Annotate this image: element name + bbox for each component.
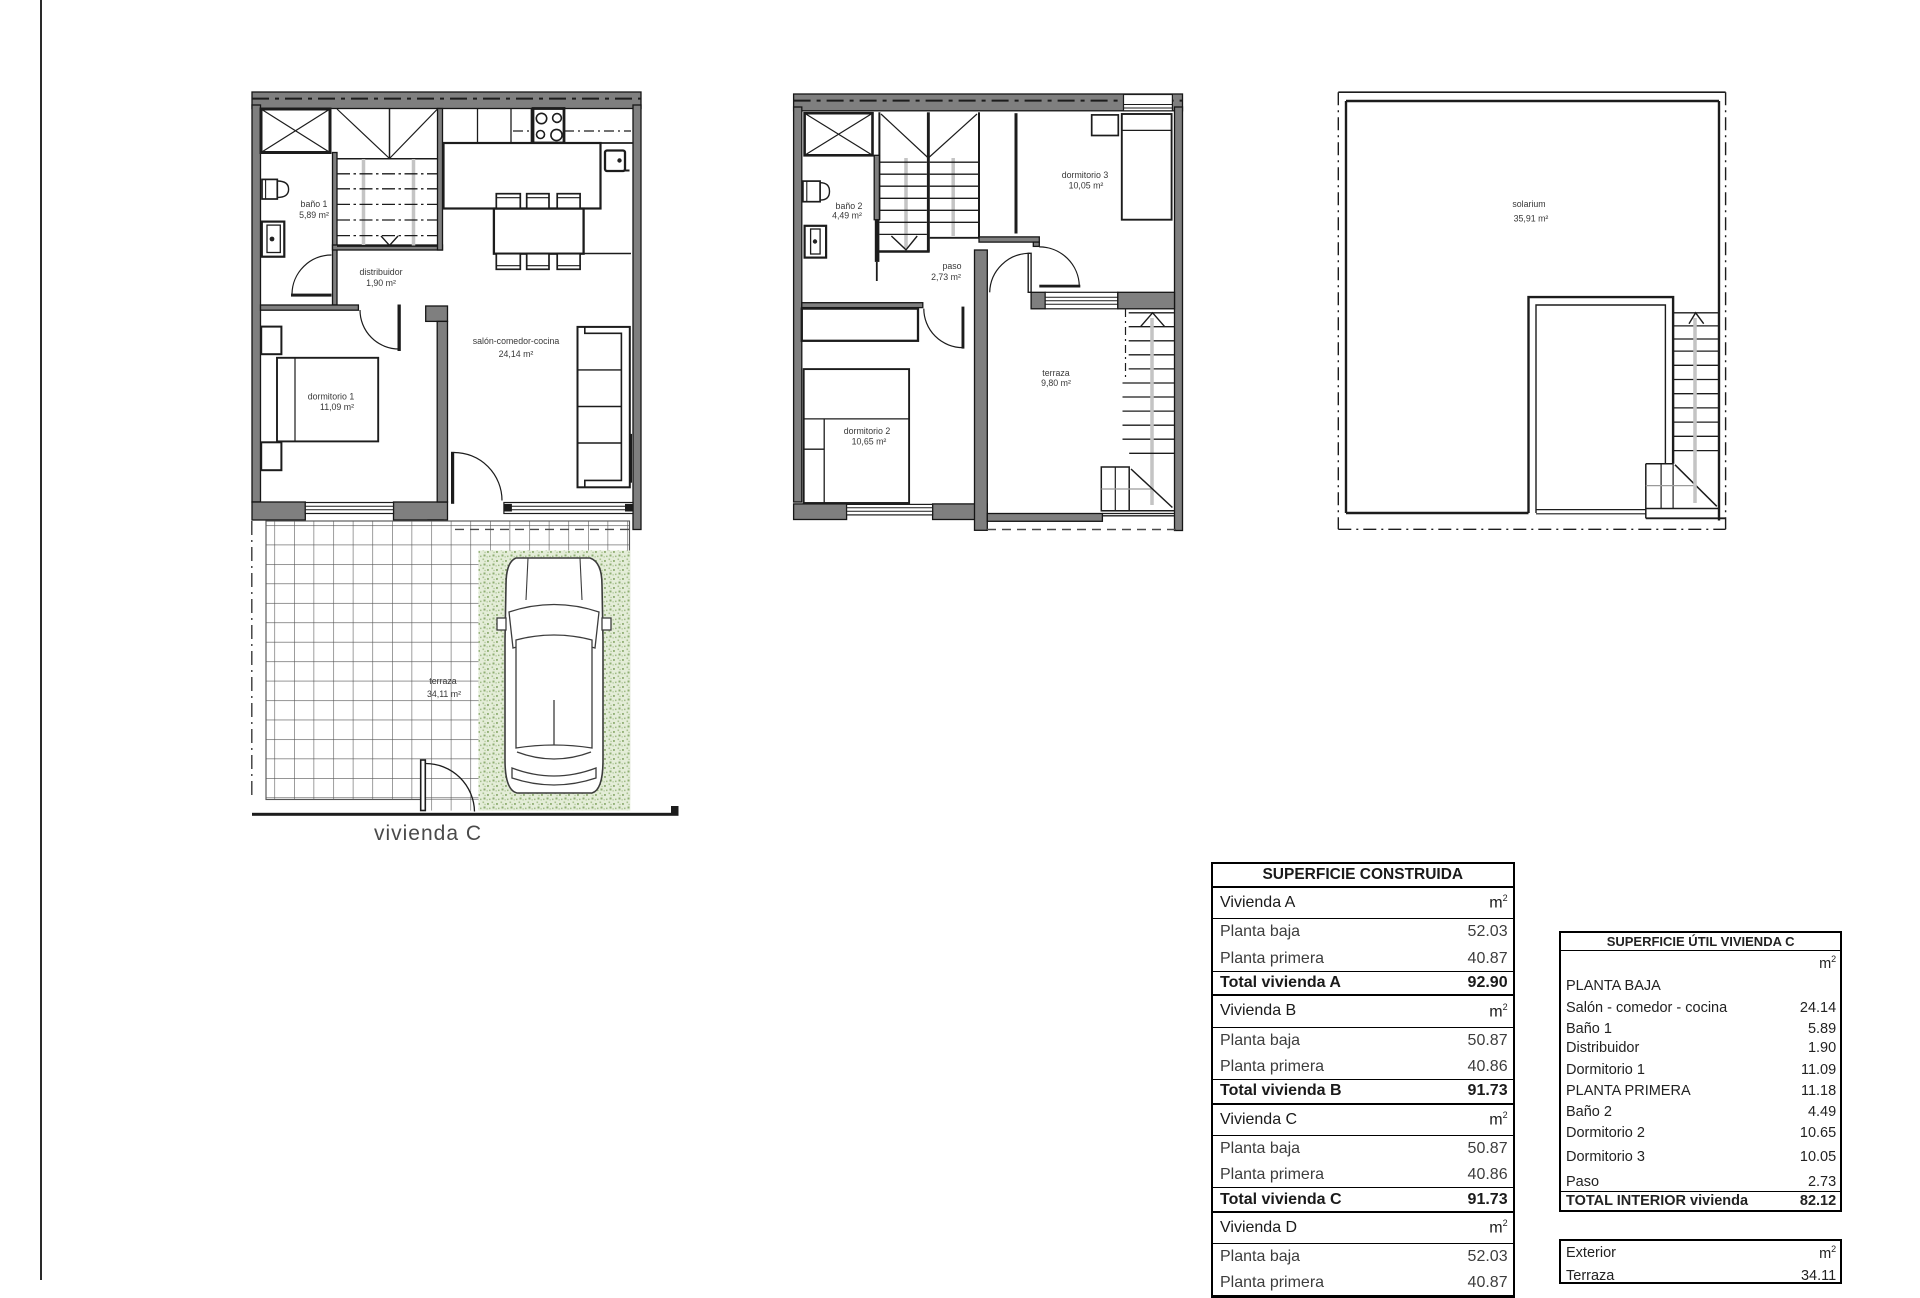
svg-text:35,91 m²: 35,91 m² xyxy=(1514,214,1549,224)
svg-text:34,11 m²: 34,11 m² xyxy=(427,689,461,699)
svg-text:dormitorio 2: dormitorio 2 xyxy=(844,426,891,436)
svg-text:distribuidor: distribuidor xyxy=(359,267,402,277)
svg-text:baño 1: baño 1 xyxy=(301,199,328,209)
svg-text:11,09 m²: 11,09 m² xyxy=(320,402,354,412)
svg-text:9,80 m²: 9,80 m² xyxy=(1041,378,1071,388)
svg-text:4,49 m²: 4,49 m² xyxy=(832,211,862,221)
svg-text:terraza: terraza xyxy=(429,676,456,686)
svg-text:solarium: solarium xyxy=(1512,199,1545,209)
svg-text:paso: paso xyxy=(942,261,961,271)
svg-text:5,89 m²: 5,89 m² xyxy=(299,210,329,220)
svg-text:terraza: terraza xyxy=(1042,368,1069,378)
svg-text:baño 2: baño 2 xyxy=(836,201,863,211)
svg-text:1,90 m²: 1,90 m² xyxy=(366,278,396,288)
svg-text:dormitorio 1: dormitorio 1 xyxy=(308,392,355,402)
svg-text:vivienda C: vivienda C xyxy=(374,822,482,845)
svg-text:dormitorio 3: dormitorio 3 xyxy=(1062,170,1109,180)
svg-text:salón-comedor-cocina: salón-comedor-cocina xyxy=(473,336,560,346)
svg-text:2,73 m²: 2,73 m² xyxy=(931,272,961,282)
svg-text:10,05 m²: 10,05 m² xyxy=(1069,181,1104,191)
svg-text:10,65 m²: 10,65 m² xyxy=(852,437,887,447)
svg-text:24,14 m²: 24,14 m² xyxy=(499,349,534,359)
